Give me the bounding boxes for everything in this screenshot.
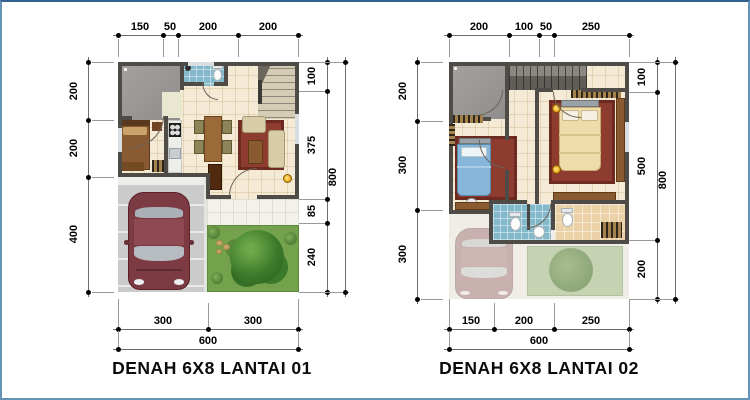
window — [625, 122, 629, 152]
stepping-stone — [216, 240, 223, 246]
dim-dot — [627, 347, 632, 352]
wall — [449, 210, 493, 214]
dim-tick — [629, 331, 630, 347]
tree — [230, 230, 284, 284]
dim-tick — [629, 299, 630, 327]
ceiling-lamp-dot — [454, 67, 457, 70]
wall — [164, 116, 168, 177]
dim-tick — [421, 210, 443, 211]
dim-tick — [629, 299, 679, 300]
dim-tick — [92, 292, 114, 293]
dim-dot — [552, 327, 557, 332]
stove-icon — [169, 123, 181, 137]
toilet-icon — [562, 213, 573, 227]
dim-tick — [494, 303, 495, 327]
carport-step — [118, 177, 206, 185]
wall — [535, 88, 539, 204]
coffee-table — [248, 140, 263, 164]
dim-dot — [415, 119, 420, 124]
sofa — [268, 130, 285, 168]
wall — [505, 62, 509, 140]
bush — [207, 226, 220, 239]
dim-dot — [296, 33, 301, 38]
toilet-icon — [510, 217, 521, 231]
dim-tick — [238, 39, 239, 57]
kitchen-sink — [169, 148, 181, 159]
dim-tick — [554, 39, 555, 57]
sink-icon — [533, 226, 545, 238]
dim-tick — [92, 120, 114, 121]
wall — [182, 82, 204, 86]
car-windshield — [134, 246, 184, 261]
dim-tick — [449, 331, 450, 347]
dim-tick — [554, 303, 555, 327]
wall — [489, 200, 527, 204]
dim-dot — [343, 290, 348, 295]
dim-tick — [208, 303, 209, 327]
plan2-graphic — [449, 62, 629, 299]
dim-label: 400 — [67, 214, 81, 254]
dim-dot — [325, 89, 330, 94]
dim-tick — [449, 299, 450, 327]
dim-tick — [421, 299, 443, 300]
dim-dot — [86, 118, 91, 123]
ghost-tree — [549, 248, 593, 292]
car-roof — [134, 219, 184, 244]
dim-label: 300 — [143, 314, 183, 328]
dim-tick — [92, 177, 114, 178]
dining-chair — [194, 120, 204, 134]
dim-tick — [118, 299, 119, 327]
dim-tick — [629, 240, 655, 241]
dim-tick — [92, 62, 114, 63]
dim-dot — [447, 347, 452, 352]
dim-label: 250 — [571, 314, 611, 328]
car-roof — [461, 248, 507, 266]
blanket-fold — [559, 134, 601, 136]
cabinet — [208, 164, 222, 190]
dim-tick — [118, 39, 119, 57]
window — [188, 62, 214, 66]
dim-tick — [298, 299, 299, 327]
dim-line — [113, 35, 303, 36]
dim-tick — [629, 62, 679, 63]
car — [128, 192, 190, 290]
dim-dot — [627, 33, 632, 38]
dim-line — [675, 57, 676, 304]
dim-dot — [325, 221, 330, 226]
wall — [206, 195, 231, 199]
dim-label: 200 — [188, 20, 228, 34]
dim-dot — [116, 347, 121, 352]
window — [295, 114, 299, 144]
dim-label: 85 — [305, 191, 319, 231]
wash-area — [162, 92, 182, 118]
dim-dot — [673, 60, 678, 65]
dim-label: 200 — [504, 314, 544, 328]
wall — [581, 88, 625, 92]
drying-rack — [601, 222, 622, 238]
dim-dot — [655, 90, 660, 95]
dim-dot — [86, 290, 91, 295]
dim-label: 200 — [67, 128, 81, 168]
ceiling-lamp-dot — [124, 68, 127, 71]
wall — [551, 204, 555, 230]
car-windshield — [461, 267, 507, 278]
dim-label: 200 — [635, 249, 649, 289]
dim-label: 240 — [305, 237, 319, 277]
stepping-stone — [216, 249, 222, 254]
toilet-icon — [213, 69, 222, 81]
dim-label: 200 — [248, 20, 288, 34]
car-hood-line — [136, 269, 182, 271]
stair-newel — [258, 80, 262, 104]
plan2-title: DENAH 6X8 LANTAI 02 — [429, 358, 649, 379]
blanket-fold — [559, 152, 601, 154]
floor-lamp — [283, 174, 292, 183]
plan1-title: DENAH 6X8 LANTAI 01 — [102, 358, 322, 379]
dim-dot — [415, 208, 420, 213]
wardrobe — [616, 98, 625, 182]
wall — [625, 62, 629, 244]
wall — [551, 200, 625, 204]
dim-label: 300 — [396, 145, 410, 185]
dim-tick — [421, 62, 443, 63]
window-louver — [449, 124, 455, 146]
window — [118, 128, 122, 152]
dim-label: 100 — [635, 57, 649, 97]
dim-dot — [447, 33, 452, 38]
dim-tick — [299, 62, 349, 63]
dim-dot — [655, 238, 660, 243]
dim-dot — [325, 197, 330, 202]
dim-dot — [296, 347, 301, 352]
blanket-fold — [457, 166, 491, 168]
dim-tick — [298, 331, 299, 347]
dim-tick — [629, 39, 630, 57]
dining-chair — [222, 140, 232, 154]
dim-dot — [415, 297, 420, 302]
dining-chair — [222, 120, 232, 134]
dining-table — [204, 116, 222, 162]
dim-line — [444, 329, 634, 330]
floor-plan-sheet: 150 50 200 200 200 200 400 — [0, 0, 750, 400]
dim-dot — [492, 327, 497, 332]
dim-label: 800 — [326, 157, 340, 197]
dim-dot — [236, 33, 241, 38]
dim-label: 50 — [150, 20, 190, 34]
dim-label: 500 — [635, 146, 649, 186]
desk — [455, 202, 491, 210]
bush — [284, 232, 297, 245]
dim-label: 300 — [396, 234, 410, 274]
wall — [449, 62, 629, 66]
dim-tick — [299, 292, 349, 293]
wall — [537, 88, 553, 92]
dim-tick — [509, 39, 510, 57]
pillow — [581, 110, 598, 121]
dim-dot — [673, 297, 678, 302]
dim-dot — [415, 60, 420, 65]
dim-dot — [343, 60, 348, 65]
dim-label: 300 — [233, 314, 273, 328]
dim-label: 200 — [67, 71, 81, 111]
dim-line — [345, 57, 346, 297]
dim-label: 600 — [188, 334, 228, 348]
dim-label: 150 — [451, 314, 491, 328]
dim-tick — [178, 39, 179, 57]
wall — [505, 170, 509, 204]
dim-line — [113, 349, 303, 350]
dim-label: 375 — [305, 125, 319, 165]
stepping-stone — [223, 244, 230, 250]
wall — [257, 195, 299, 199]
dresser — [122, 162, 144, 171]
dim-dot — [86, 60, 91, 65]
dim-label: 250 — [571, 20, 611, 34]
dim-tick — [163, 39, 164, 57]
car-mirror — [124, 240, 130, 245]
dim-label: 200 — [459, 20, 499, 34]
dining-chair — [194, 140, 204, 154]
car-mirror — [189, 240, 195, 245]
wall — [118, 173, 208, 177]
car-rear-window — [135, 207, 182, 219]
dim-tick — [298, 39, 299, 57]
dim-label: 50 — [526, 20, 566, 34]
dim-tick — [539, 39, 540, 57]
bedside-lamp — [552, 165, 561, 174]
dim-tick — [118, 331, 119, 347]
window-louver — [453, 115, 483, 123]
dim-label: 600 — [519, 334, 559, 348]
armchair — [242, 116, 266, 133]
bush — [211, 272, 223, 284]
dim-tick — [421, 121, 443, 122]
dim-tick — [449, 39, 450, 57]
dim-dot — [206, 327, 211, 332]
vent-rack — [152, 160, 164, 172]
plan1-graphic — [118, 62, 299, 292]
dim-label: 800 — [656, 160, 670, 200]
dim-line — [444, 349, 634, 350]
dim-dot — [86, 175, 91, 180]
dim-label: 200 — [396, 71, 410, 111]
porch-floor — [207, 199, 299, 225]
wall — [489, 240, 629, 244]
dim-line — [417, 57, 418, 304]
